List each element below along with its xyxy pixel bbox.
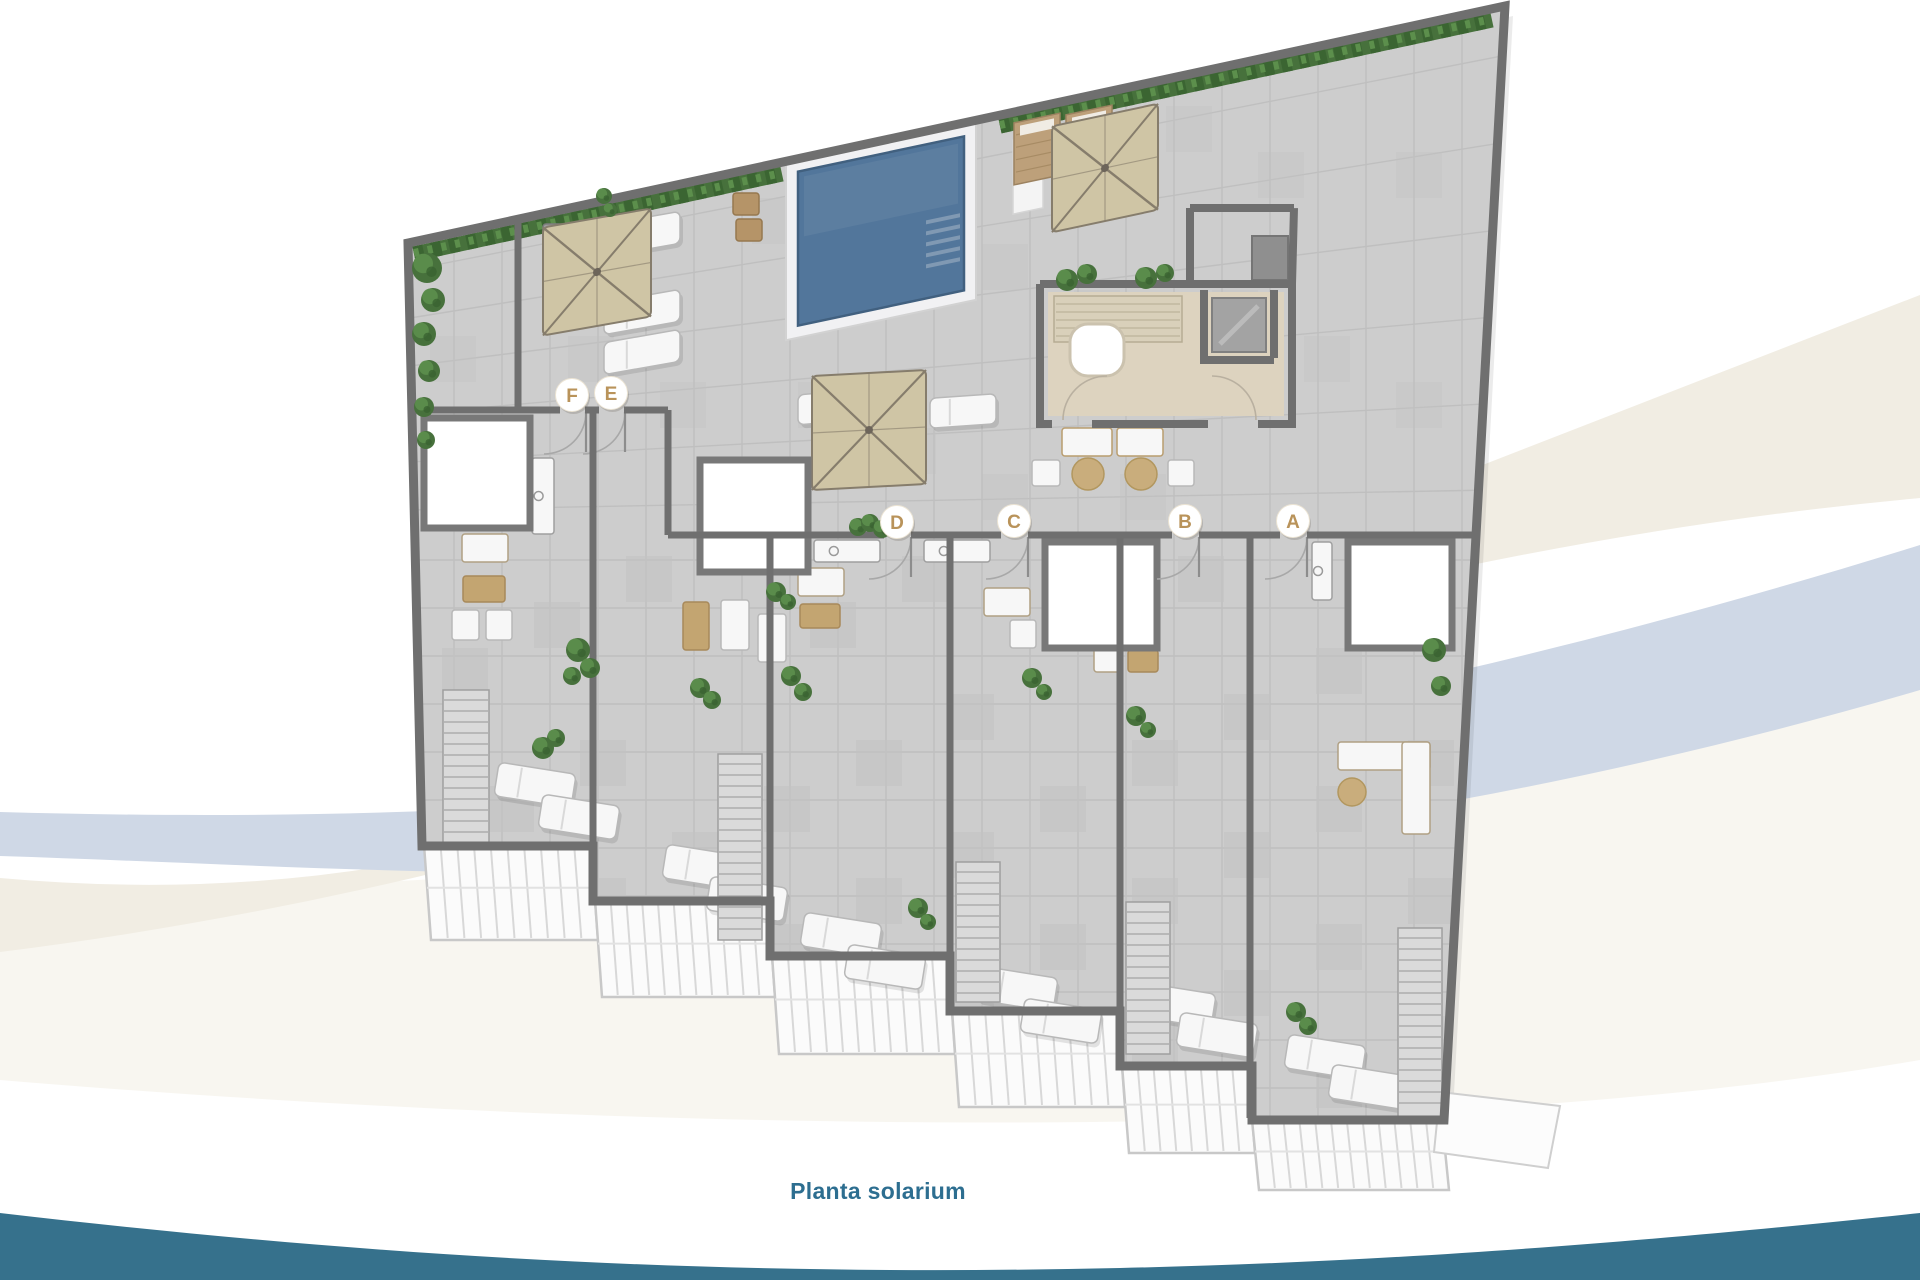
stairs (1126, 902, 1170, 1054)
skylight-void (424, 418, 530, 528)
round-table (1072, 458, 1104, 490)
tile-accent (1408, 878, 1454, 924)
bush (781, 666, 801, 686)
bush (596, 188, 612, 204)
stairs (718, 754, 762, 940)
bush (1140, 722, 1156, 738)
bush (1126, 706, 1146, 726)
unit-letter: E (605, 384, 618, 405)
bush (794, 683, 812, 701)
pergola-panel (1122, 1065, 1255, 1153)
shower-box (1252, 236, 1288, 280)
corner-sofa (1402, 742, 1430, 834)
tile-accent (626, 556, 672, 602)
counter (814, 540, 880, 562)
bush (1077, 264, 1097, 284)
floorplan-scene: FEDCBA (0, 0, 1920, 1280)
umbrella-icon (812, 370, 926, 490)
bush (417, 431, 435, 449)
side-chair (1168, 460, 1194, 486)
stairs (956, 862, 1000, 1002)
tile-accent (1040, 786, 1086, 832)
bush (780, 594, 796, 610)
bottom-wave (0, 1213, 1920, 1280)
table (1117, 428, 1163, 456)
umbrella-icon (543, 208, 651, 335)
unit-letter: C (1007, 512, 1021, 533)
sofa (984, 588, 1030, 616)
tile-accent (442, 648, 488, 694)
side-chair (1032, 460, 1060, 486)
bush (547, 729, 565, 747)
tile-accent (1132, 740, 1178, 786)
bush (418, 360, 440, 382)
jacuzzi (1070, 324, 1124, 376)
tile-accent (856, 878, 902, 924)
tile-accent (1396, 382, 1442, 428)
bush (603, 203, 617, 217)
stairs (1398, 928, 1442, 1118)
unit-letter: B (1178, 512, 1192, 533)
wood-table (736, 219, 762, 241)
tile-accent (798, 60, 844, 106)
bush (563, 667, 581, 685)
bush (920, 914, 936, 930)
tile-accent (1316, 924, 1362, 970)
bush (1422, 638, 1446, 662)
lower-terrace-panel (1434, 1092, 1560, 1168)
stairs (443, 690, 489, 848)
tile-accent (580, 740, 626, 786)
pergola-panel (1252, 1120, 1449, 1190)
armchair (486, 610, 512, 640)
skylight-void (1045, 542, 1157, 648)
table (1062, 428, 1112, 456)
floorplan-page: FEDCBA Planta solarium (0, 0, 1920, 1280)
table (1128, 650, 1158, 672)
tile-accent (1040, 924, 1086, 970)
pouf (1338, 778, 1366, 806)
skylight-void (700, 460, 808, 572)
bush (421, 288, 445, 312)
bush (1431, 676, 1451, 696)
tile-accent (948, 694, 994, 740)
bush (1056, 269, 1078, 291)
tile-accent (1304, 336, 1350, 382)
tile-accent (982, 244, 1028, 290)
counter (924, 540, 990, 562)
unit-letter: A (1286, 512, 1300, 533)
bush (566, 638, 590, 662)
unit-letter: D (890, 513, 904, 534)
bush (414, 397, 434, 417)
table (463, 576, 505, 602)
tile-accent (1178, 556, 1224, 602)
tile-accent (856, 740, 902, 786)
bush (1135, 267, 1157, 289)
bush (1036, 684, 1052, 700)
bush (1156, 264, 1174, 282)
skylight-void (1348, 542, 1452, 648)
bush (703, 691, 721, 709)
bush (412, 322, 436, 346)
deck-chair (721, 600, 749, 650)
tile-accent (936, 60, 982, 106)
armchair (452, 610, 479, 640)
pergola-panel (424, 845, 598, 940)
round-table (1125, 458, 1157, 490)
plan-title: Planta solarium (790, 1178, 966, 1205)
tile-accent (1258, 152, 1304, 198)
wood-table (733, 193, 759, 215)
sofa (462, 534, 508, 562)
bush (1299, 1017, 1317, 1035)
tile-accent (1166, 106, 1212, 152)
sun-mat (683, 602, 709, 650)
bush (412, 253, 442, 283)
umbrella-icon (1052, 104, 1158, 233)
table (800, 604, 840, 628)
tile-accent (902, 556, 948, 602)
tile-accent (522, 152, 568, 198)
armchair (1010, 620, 1036, 648)
lounger (930, 393, 999, 432)
unit-letter: F (566, 386, 578, 407)
bush (580, 658, 600, 678)
tile-accent (1396, 152, 1442, 198)
bush (1022, 668, 1042, 688)
tile-accent (1316, 648, 1362, 694)
